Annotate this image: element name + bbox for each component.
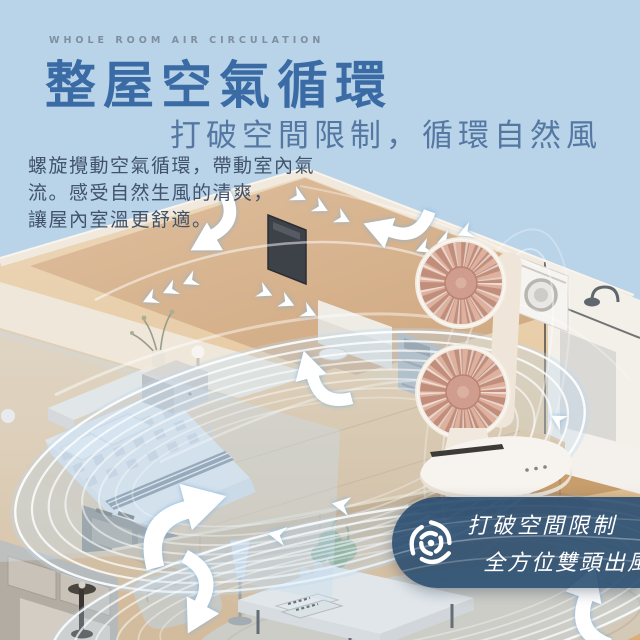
fan-head-bottom [415,344,511,440]
badge-line2: 全方位雙頭出風 [483,545,640,577]
feature-badge: 打破空間限制 全方位雙頭出風 [392,497,640,588]
fan-head-top [415,237,507,329]
badge-text: 打破空間限制 全方位雙頭出風 [467,508,640,577]
promo-banner: WHOLE ROOM AIR CIRCULATION 整屋空氣循環 打破空間限制… [0,0,640,640]
swirl-vortex-icon [405,517,457,569]
table-lamp [192,346,205,359]
badge-line1: 打破空間限制 [467,508,640,540]
